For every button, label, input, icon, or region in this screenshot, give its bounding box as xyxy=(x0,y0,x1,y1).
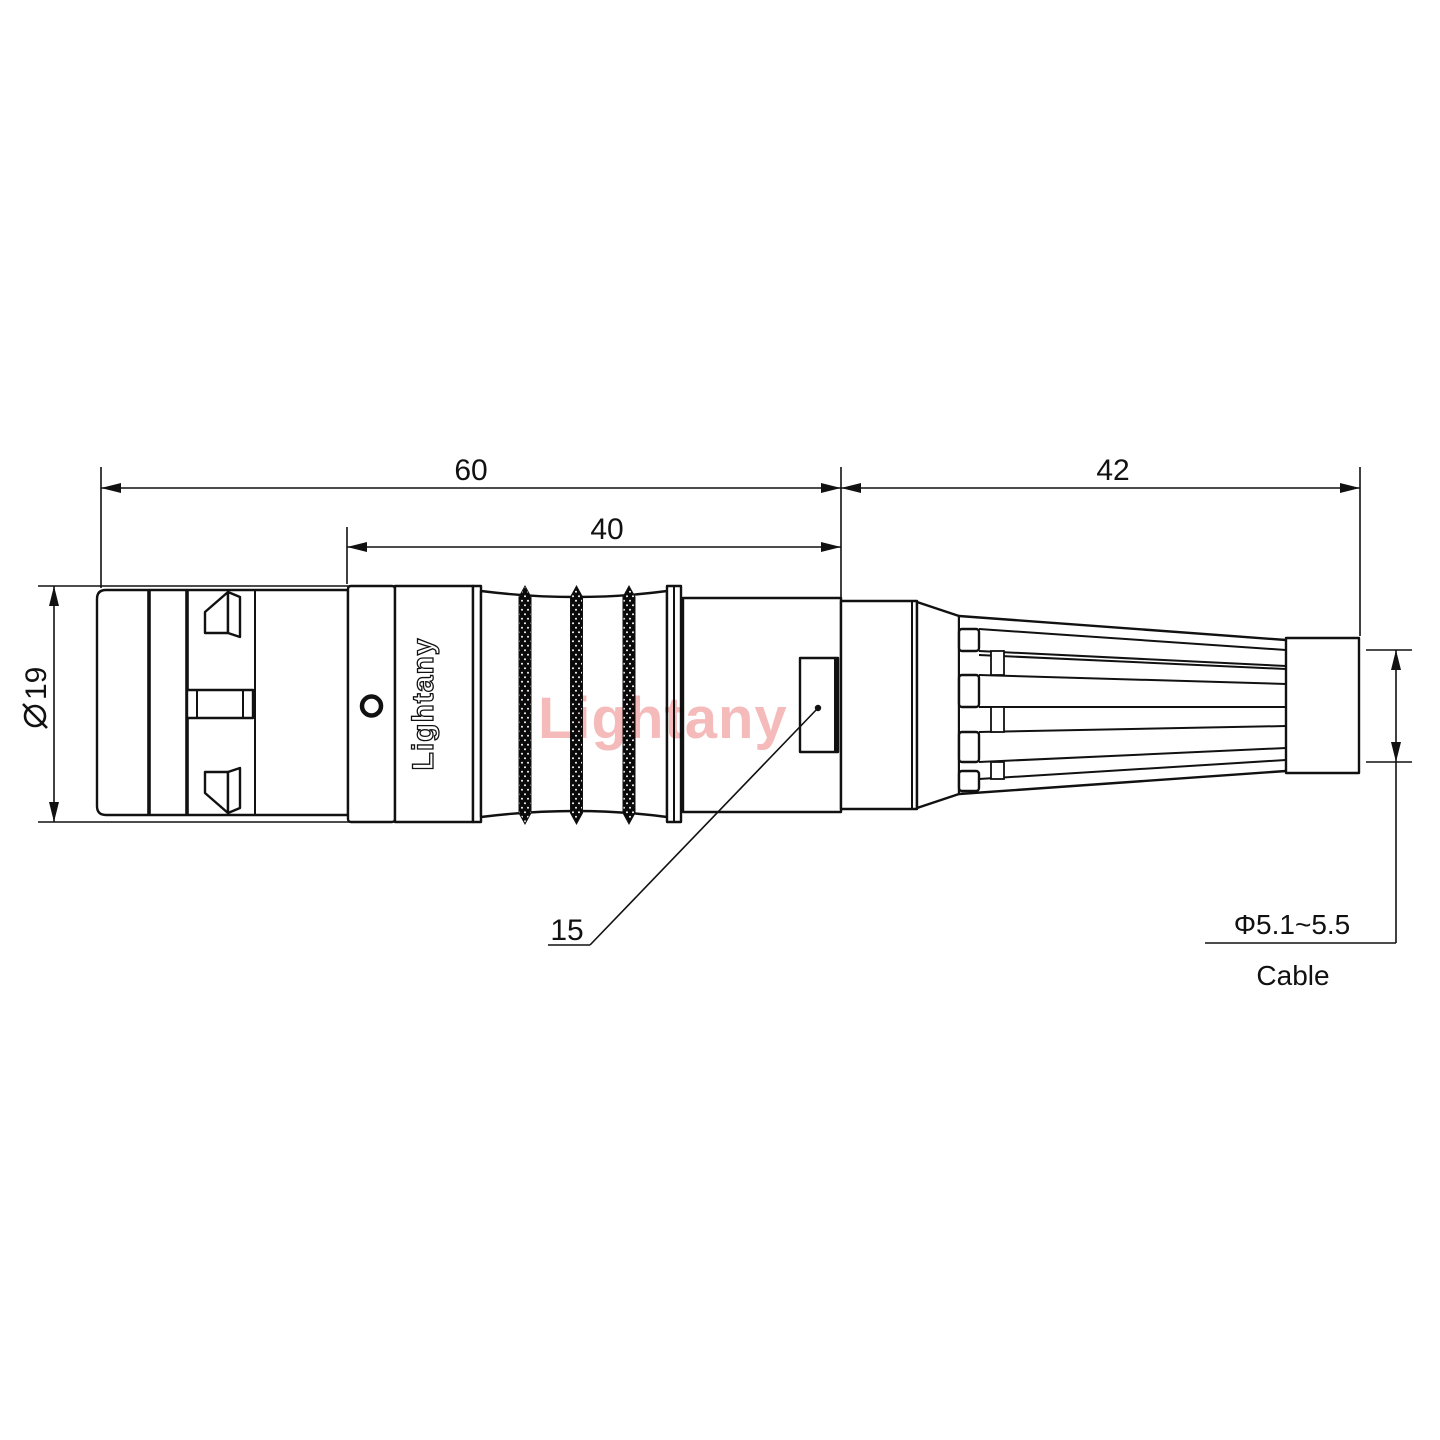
boot-taper xyxy=(917,602,959,808)
watermark-text: Lightany xyxy=(538,686,788,751)
strain-relief-boot xyxy=(917,602,1359,808)
dimension-40: 40 xyxy=(347,513,841,584)
dim-diameter-19-label: 19 xyxy=(20,667,53,728)
cable-ferrule xyxy=(1286,638,1359,773)
knurl-band-1 xyxy=(519,586,531,824)
cable-label-text: Cable xyxy=(1256,960,1329,991)
boot-collar xyxy=(841,601,917,809)
dim-60-text: 60 xyxy=(454,454,487,487)
connector-drawing: Lightany xyxy=(0,0,1440,1440)
fin-bundle-bg xyxy=(959,616,1286,794)
dim-42-text: 42 xyxy=(1096,454,1129,487)
diameter-symbol-icon xyxy=(23,704,47,728)
dimension-60: 60 xyxy=(101,454,841,599)
dim-40-text: 40 xyxy=(590,513,623,546)
key-window xyxy=(187,690,253,718)
cable-diameter-text: Φ5.1~5.5 xyxy=(1234,909,1351,940)
body-marking-text: Lightany xyxy=(407,638,440,771)
dim-19-text: 19 xyxy=(20,667,53,700)
leader-dot xyxy=(815,705,821,711)
technical-drawing-page: Lightany xyxy=(0,0,1440,1440)
vent-hole xyxy=(362,697,381,716)
leader-15-text: 15 xyxy=(550,914,583,947)
